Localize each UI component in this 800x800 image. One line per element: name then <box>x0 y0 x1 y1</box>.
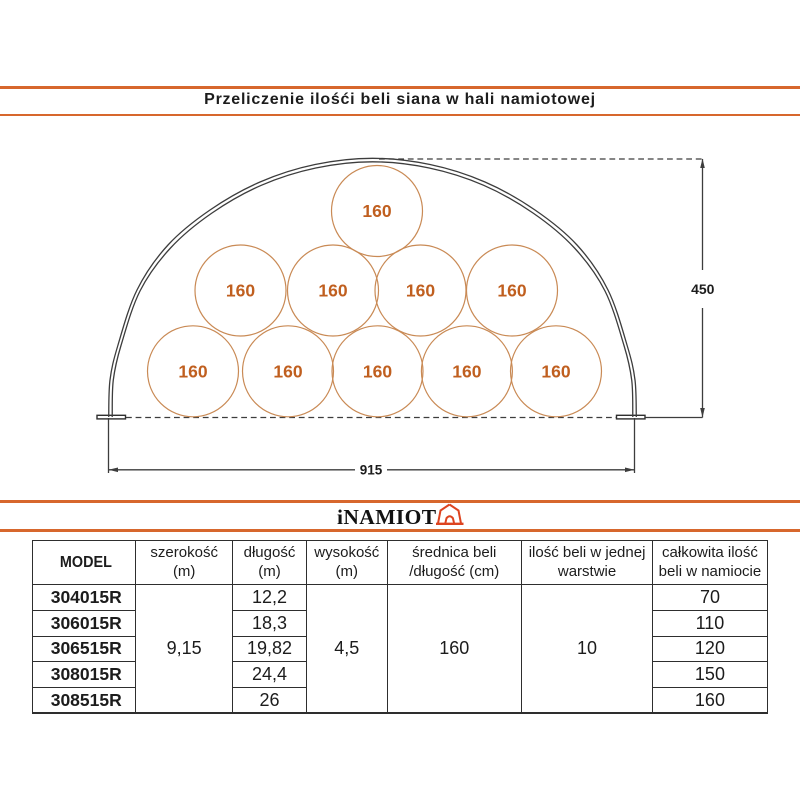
svg-text:160: 160 <box>497 281 526 301</box>
svg-text:160: 160 <box>273 361 302 381</box>
svg-text:160: 160 <box>178 361 207 381</box>
svg-text:915: 915 <box>360 463 383 478</box>
svg-text:160: 160 <box>452 361 481 381</box>
svg-text:160: 160 <box>406 281 435 301</box>
svg-text:160: 160 <box>362 201 391 221</box>
svg-text:160: 160 <box>318 281 347 301</box>
svg-text:160: 160 <box>541 361 570 381</box>
svg-text:160: 160 <box>226 281 255 301</box>
svg-text:450: 450 <box>691 281 715 297</box>
svg-text:160: 160 <box>363 361 392 381</box>
